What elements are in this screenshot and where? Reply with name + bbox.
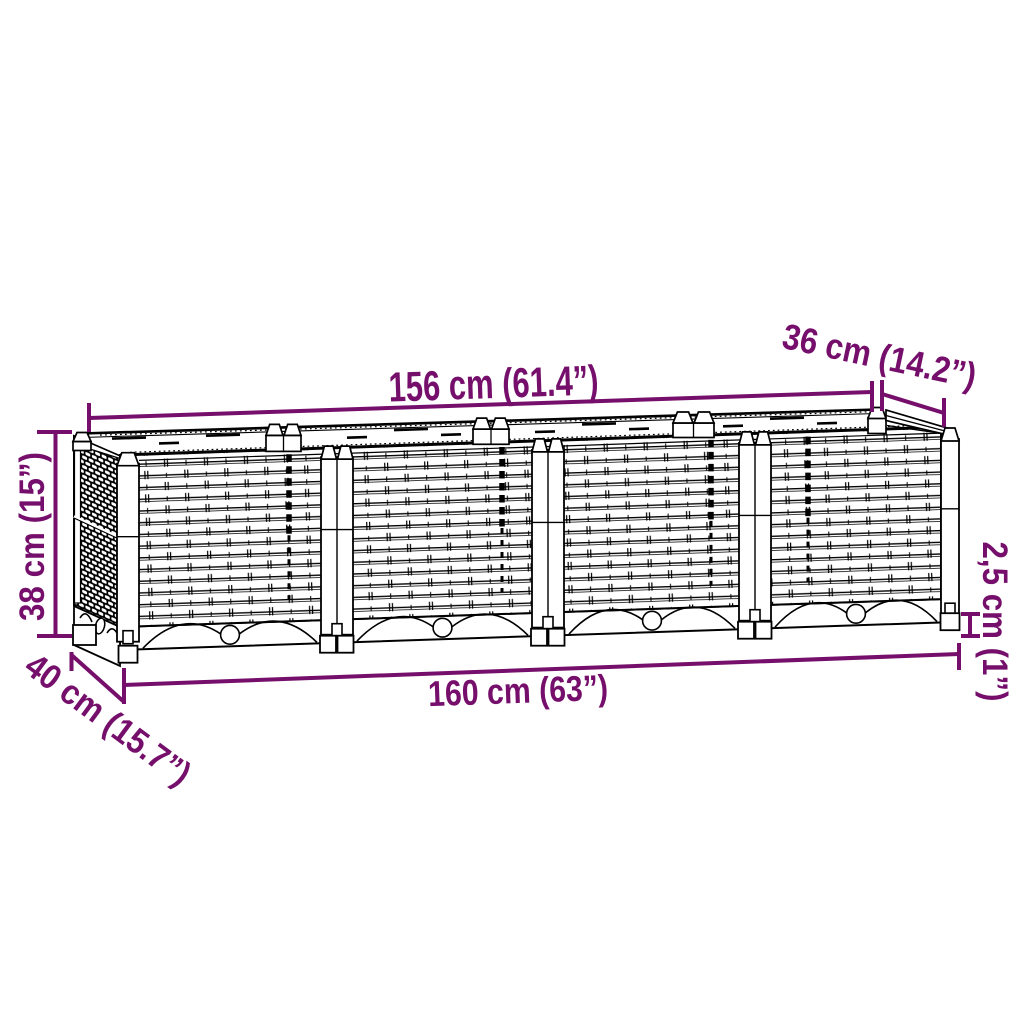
svg-text:2,5 cm (1”): 2,5 cm (1”) bbox=[975, 542, 1014, 702]
svg-text:38 cm (15”): 38 cm (15”) bbox=[13, 452, 52, 621]
svg-text:160 cm (63”): 160 cm (63”) bbox=[427, 667, 608, 715]
svg-text:156 cm (61.4”): 156 cm (61.4”) bbox=[388, 356, 600, 410]
svg-text:40 cm (15.7”): 40 cm (15.7”) bbox=[17, 646, 198, 794]
svg-text:36 cm (14.2”): 36 cm (14.2”) bbox=[779, 315, 980, 396]
